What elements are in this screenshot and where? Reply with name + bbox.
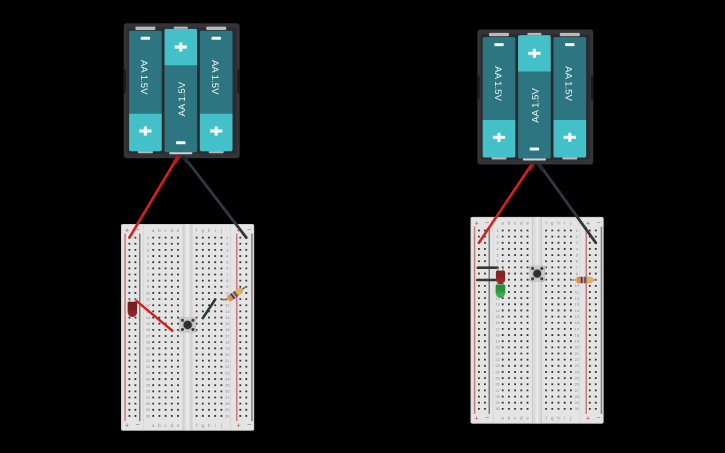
svg-text:6: 6 (226, 266, 228, 271)
svg-text:23: 23 (225, 370, 229, 375)
svg-text:23: 23 (495, 363, 499, 368)
svg-text:6: 6 (576, 259, 578, 264)
svg-text:1: 1 (226, 235, 228, 240)
svg-text:AA 1.5V: AA 1.5V (209, 60, 220, 95)
svg-text:+: + (586, 416, 590, 423)
svg-text:16: 16 (575, 320, 579, 325)
svg-text:11: 11 (575, 289, 579, 294)
svg-text:15: 15 (146, 321, 150, 326)
svg-text:15: 15 (225, 321, 229, 326)
svg-text:21: 21 (575, 351, 579, 356)
svg-text:+: + (125, 227, 129, 234)
svg-text:29: 29 (495, 400, 499, 405)
svg-text:−: − (136, 422, 140, 429)
svg-text:3: 3 (226, 247, 228, 252)
svg-text:e: e (526, 221, 529, 226)
svg-text:5: 5 (496, 253, 498, 258)
svg-text:15: 15 (575, 314, 579, 319)
svg-text:b: b (158, 423, 161, 428)
svg-text:28: 28 (575, 394, 579, 399)
svg-text:29: 29 (575, 400, 579, 405)
svg-text:19: 19 (225, 346, 229, 351)
svg-text:2: 2 (226, 241, 228, 246)
svg-text:+: + (474, 416, 478, 423)
svg-text:29: 29 (146, 407, 150, 412)
svg-text:18: 18 (225, 340, 229, 345)
svg-text:19: 19 (575, 339, 579, 344)
svg-text:25: 25 (575, 376, 579, 381)
svg-text:28: 28 (225, 401, 229, 406)
svg-text:26: 26 (225, 389, 229, 394)
svg-text:25: 25 (225, 383, 229, 388)
svg-text:d: d (171, 423, 174, 428)
svg-text:e: e (177, 423, 180, 428)
svg-text:h: h (557, 416, 560, 421)
svg-text:a: a (152, 423, 155, 428)
svg-text:+: + (474, 220, 478, 227)
svg-text:13: 13 (575, 302, 579, 307)
svg-text:22: 22 (495, 357, 499, 362)
svg-text:23: 23 (575, 363, 579, 368)
svg-text:3: 3 (147, 247, 149, 252)
svg-text:−: − (596, 415, 600, 422)
svg-text:g: g (202, 228, 205, 233)
svg-text:8: 8 (147, 278, 149, 283)
svg-text:21: 21 (495, 351, 499, 356)
svg-text:8: 8 (226, 278, 228, 283)
svg-text:9: 9 (147, 284, 149, 289)
svg-text:i: i (215, 228, 216, 233)
svg-text:−: − (596, 220, 600, 227)
svg-text:2: 2 (147, 241, 149, 246)
svg-text:29: 29 (225, 407, 229, 412)
svg-text:8: 8 (576, 271, 578, 276)
svg-text:e: e (526, 416, 529, 421)
svg-text:16: 16 (146, 327, 150, 332)
svg-text:3: 3 (576, 240, 578, 245)
svg-text:i: i (564, 221, 565, 226)
svg-text:21: 21 (146, 358, 150, 363)
svg-text:g: g (551, 416, 554, 421)
svg-text:j: j (220, 228, 222, 233)
svg-text:28: 28 (146, 401, 150, 406)
svg-text:−: − (247, 422, 251, 429)
svg-text:2: 2 (576, 234, 578, 239)
svg-text:g: g (551, 221, 554, 226)
svg-text:22: 22 (225, 364, 229, 369)
svg-text:1: 1 (147, 235, 149, 240)
svg-text:16: 16 (225, 327, 229, 332)
svg-text:j: j (220, 423, 222, 428)
svg-text:5: 5 (147, 260, 149, 265)
svg-text:1: 1 (496, 228, 498, 233)
svg-text:23: 23 (146, 370, 150, 375)
svg-text:26: 26 (146, 389, 150, 394)
svg-text:AA 1.5V: AA 1.5V (138, 60, 149, 95)
svg-text:b: b (508, 416, 511, 421)
svg-text:7: 7 (576, 265, 578, 270)
svg-text:11: 11 (146, 297, 150, 302)
svg-text:27: 27 (575, 388, 579, 393)
svg-text:d: d (520, 221, 523, 226)
svg-text:25: 25 (146, 383, 150, 388)
svg-text:3: 3 (496, 240, 498, 245)
svg-text:16: 16 (495, 320, 499, 325)
svg-text:15: 15 (495, 314, 499, 319)
svg-text:22: 22 (146, 364, 150, 369)
svg-text:18: 18 (146, 340, 150, 345)
svg-text:e: e (177, 228, 180, 233)
svg-text:12: 12 (146, 303, 150, 308)
svg-text:i: i (564, 416, 565, 421)
svg-text:1: 1 (576, 228, 578, 233)
svg-text:d: d (171, 228, 174, 233)
svg-text:h: h (557, 221, 560, 226)
svg-text:+: + (237, 423, 241, 430)
svg-text:7: 7 (147, 272, 149, 277)
svg-text:18: 18 (495, 332, 499, 337)
svg-text:13: 13 (225, 309, 229, 314)
svg-text:19: 19 (146, 346, 150, 351)
svg-text:26: 26 (575, 382, 579, 387)
svg-text:28: 28 (495, 394, 499, 399)
svg-text:5: 5 (226, 260, 228, 265)
svg-text:27: 27 (495, 388, 499, 393)
svg-text:+: + (125, 423, 129, 430)
svg-text:9: 9 (226, 284, 228, 289)
svg-text:b: b (158, 228, 161, 233)
svg-text:g: g (202, 423, 205, 428)
svg-text:6: 6 (496, 259, 498, 264)
svg-text:12: 12 (225, 303, 229, 308)
svg-text:h: h (208, 228, 211, 233)
svg-text:5: 5 (576, 253, 578, 258)
svg-text:i: i (215, 423, 216, 428)
svg-text:AA 1.5V: AA 1.5V (492, 66, 503, 101)
svg-text:17: 17 (146, 333, 150, 338)
svg-text:AA 1.5V: AA 1.5V (530, 88, 541, 123)
svg-text:+: + (586, 220, 590, 227)
svg-text:22: 22 (575, 357, 579, 362)
svg-text:26: 26 (495, 382, 499, 387)
svg-text:13: 13 (495, 302, 499, 307)
svg-text:21: 21 (225, 358, 229, 363)
svg-text:−: − (485, 415, 489, 422)
svg-text:19: 19 (495, 339, 499, 344)
svg-text:27: 27 (225, 395, 229, 400)
svg-text:6: 6 (147, 266, 149, 271)
svg-text:−: − (485, 220, 489, 227)
svg-text:17: 17 (225, 333, 229, 338)
svg-text:12: 12 (575, 296, 579, 301)
svg-text:17: 17 (495, 326, 499, 331)
svg-text:2: 2 (496, 234, 498, 239)
svg-text:d: d (520, 416, 523, 421)
svg-text:18: 18 (575, 332, 579, 337)
svg-text:a: a (501, 221, 504, 226)
svg-text:AA 1.5V: AA 1.5V (177, 81, 188, 116)
svg-text:−: − (247, 227, 251, 234)
svg-text:25: 25 (495, 376, 499, 381)
svg-text:b: b (508, 221, 511, 226)
svg-text:7: 7 (226, 272, 228, 277)
svg-text:h: h (208, 423, 211, 428)
svg-text:a: a (152, 228, 155, 233)
svg-text:j: j (569, 416, 571, 421)
svg-text:j: j (569, 221, 571, 226)
svg-text:17: 17 (575, 326, 579, 331)
svg-text:27: 27 (146, 395, 150, 400)
svg-text:AA 1.5V: AA 1.5V (563, 66, 574, 101)
svg-text:a: a (501, 416, 504, 421)
